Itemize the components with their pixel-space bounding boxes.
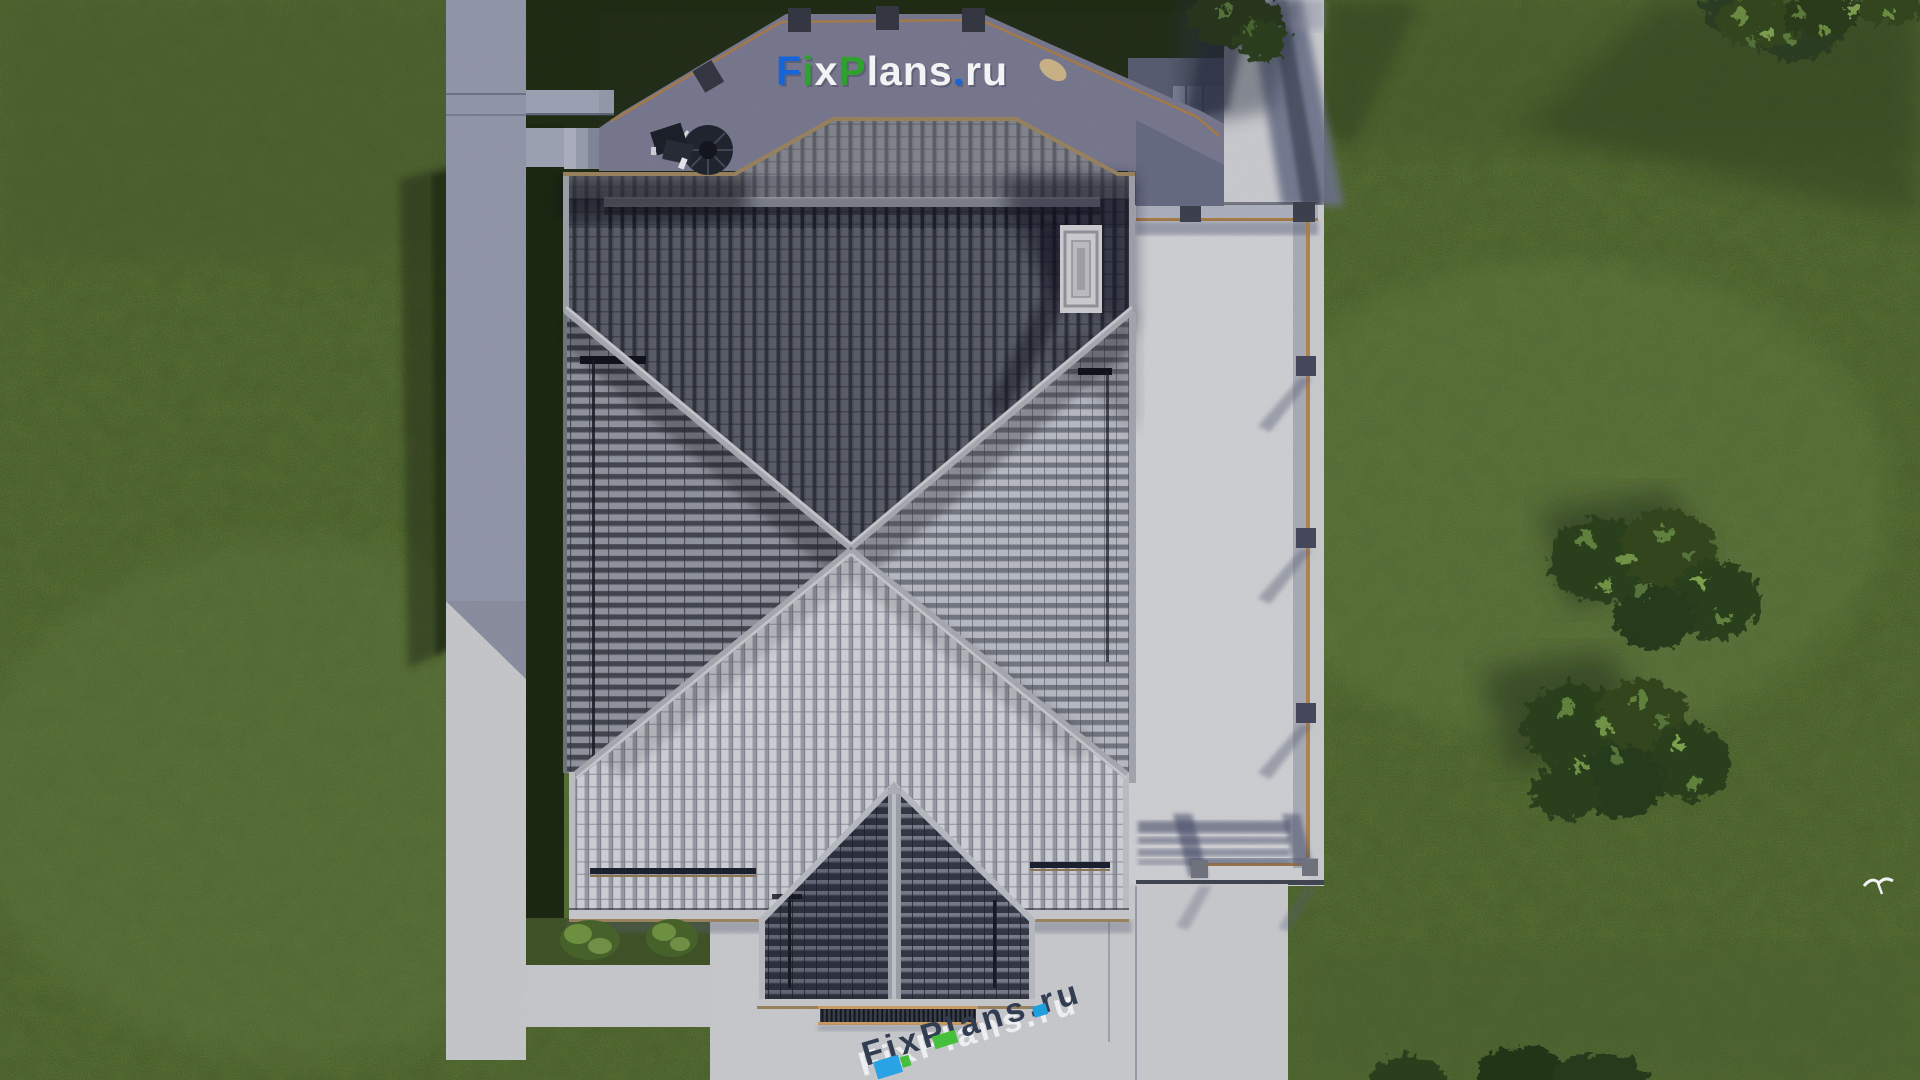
svg-text:FixPlans.ru: FixPlans.ru [776,48,1008,94]
